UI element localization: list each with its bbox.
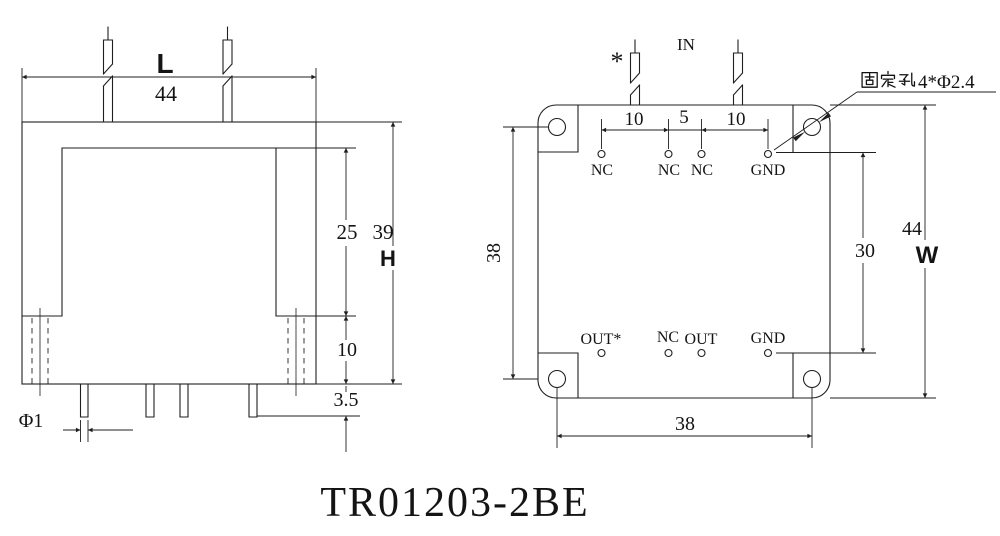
dim-44w-value: 44 (902, 218, 922, 240)
dim-39-value: 39 (373, 220, 394, 244)
pad-gnd-bottom (765, 350, 772, 357)
input-pin-right (734, 40, 743, 105)
cjk-kong-glyph (899, 73, 914, 86)
dim-W-letter: W (916, 242, 939, 269)
label-nc-1: NC (591, 162, 613, 179)
label-nc-4: NC (657, 329, 679, 346)
top-pin-left (104, 27, 113, 122)
pad-nc-4 (665, 350, 672, 357)
bottom-pad-row (598, 350, 772, 357)
mounting-hole-top-right (804, 119, 821, 136)
dim-38v-value: 38 (483, 243, 505, 263)
label-out: OUT (685, 331, 718, 348)
side-view: L 44 25 39 H 10 3.5 Φ1 (19, 27, 402, 452)
part-number-title: TR01203-2BE (320, 480, 589, 526)
fixing-hole-leader (774, 92, 996, 150)
pad-out-star (598, 350, 605, 357)
hole-span-v-extensions (503, 127, 548, 379)
dim-pitch-mid: 5 (679, 107, 689, 128)
pad-nc-1 (598, 151, 605, 158)
bottom-pins (81, 384, 258, 417)
pad-nc-2 (665, 151, 672, 158)
technical-drawing: L 44 25 39 H 10 3.5 Φ1 (0, 0, 1000, 536)
dim-10-value: 10 (337, 339, 357, 361)
label-out-star: OUT* (581, 331, 622, 348)
dim-L-letter: L (156, 48, 173, 79)
polarity-asterisk: * (611, 47, 624, 76)
pad-gnd-top (765, 151, 772, 158)
label-gnd-bottom: GND (751, 330, 786, 347)
input-label: IN (677, 35, 695, 54)
pad-nc-3 (698, 151, 705, 158)
dim-pitch-left: 10 (625, 109, 644, 130)
pad-out (698, 350, 705, 357)
top-pad-row (598, 151, 772, 158)
label-gnd-top: GND (751, 162, 786, 179)
dim-H-letter: H (380, 246, 396, 271)
top-view: NC NC NC GND OUT* NC OUT GND IN * 10 5 1… (483, 35, 996, 448)
dim-25-value: 25 (337, 220, 358, 244)
cjk-gu-glyph (862, 73, 877, 88)
label-nc-2: NC (658, 162, 680, 179)
drawing-sheet: L 44 25 39 H 10 3.5 Φ1 (0, 0, 1000, 536)
dim-phi1-ticks (81, 420, 89, 442)
dim-3-5-value: 3.5 (334, 389, 359, 411)
leader-arrow-lower (793, 132, 805, 141)
mounting-hole-bottom-right (804, 371, 821, 388)
input-pin-left (631, 40, 640, 105)
dim-30-value: 30 (855, 240, 875, 262)
pin-center-lines (40, 308, 296, 396)
dim-44-value: 44 (155, 81, 177, 106)
dim-38h-value: 38 (675, 413, 695, 435)
transformer-body-outline (22, 122, 316, 384)
fixing-hole-cjk-glyphs (862, 72, 914, 88)
cjk-ding-glyph (882, 72, 896, 88)
top-view-body-outline (538, 105, 830, 398)
mounting-hole-bottom-left (549, 371, 566, 388)
dim-pitch-right: 10 (727, 109, 746, 130)
fixing-hole-label: 4*Φ2.4 (918, 72, 975, 93)
dim-phi1-value: Φ1 (19, 410, 44, 432)
label-nc-3: NC (691, 162, 713, 179)
bobbin-window (22, 148, 316, 316)
hidden-pin-lines (32, 318, 304, 384)
mounting-hole-top-left (549, 119, 566, 136)
top-pin-right (223, 27, 232, 122)
